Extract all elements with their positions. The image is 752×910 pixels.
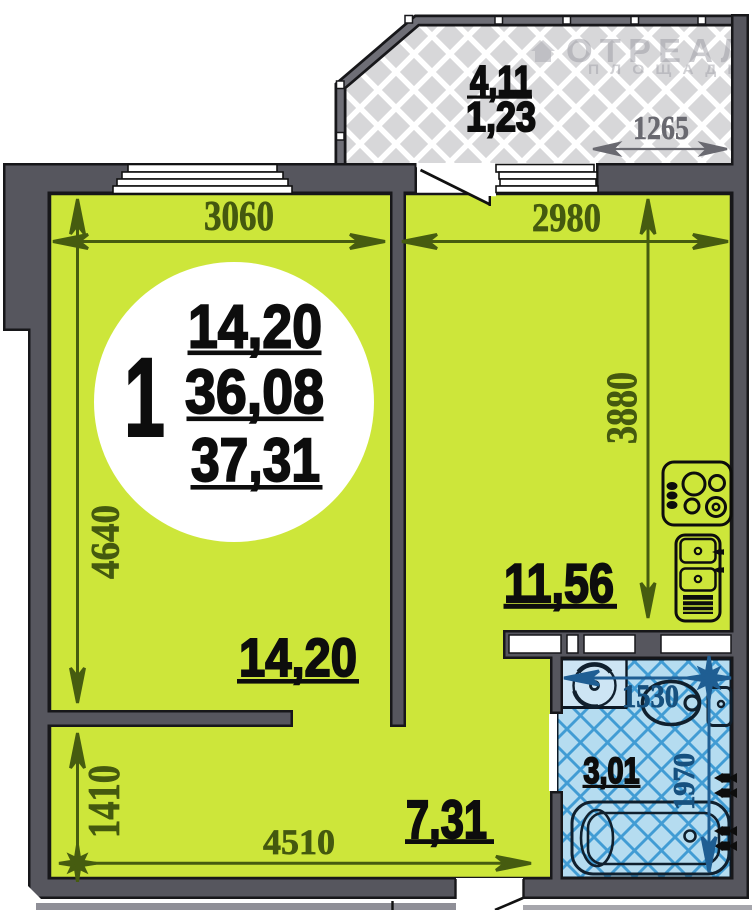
svg-text:1530: 1530 [622, 679, 679, 715]
svg-text:1,23: 1,23 [466, 93, 536, 140]
svg-text:ПЛОЩАДК: ПЛОЩАДК [588, 61, 748, 77]
svg-text:1265: 1265 [633, 110, 689, 147]
svg-text:37,31: 37,31 [191, 426, 320, 494]
svg-text:4640: 4640 [83, 505, 128, 579]
svg-text:14,20: 14,20 [188, 293, 322, 361]
svg-text:1: 1 [124, 335, 165, 460]
svg-text:1410: 1410 [79, 765, 129, 838]
svg-text:3880: 3880 [599, 372, 646, 444]
svg-text:1970: 1970 [666, 753, 701, 810]
svg-text:2980: 2980 [532, 195, 601, 240]
svg-text:3060: 3060 [204, 194, 274, 240]
svg-text:4510: 4510 [263, 822, 335, 862]
